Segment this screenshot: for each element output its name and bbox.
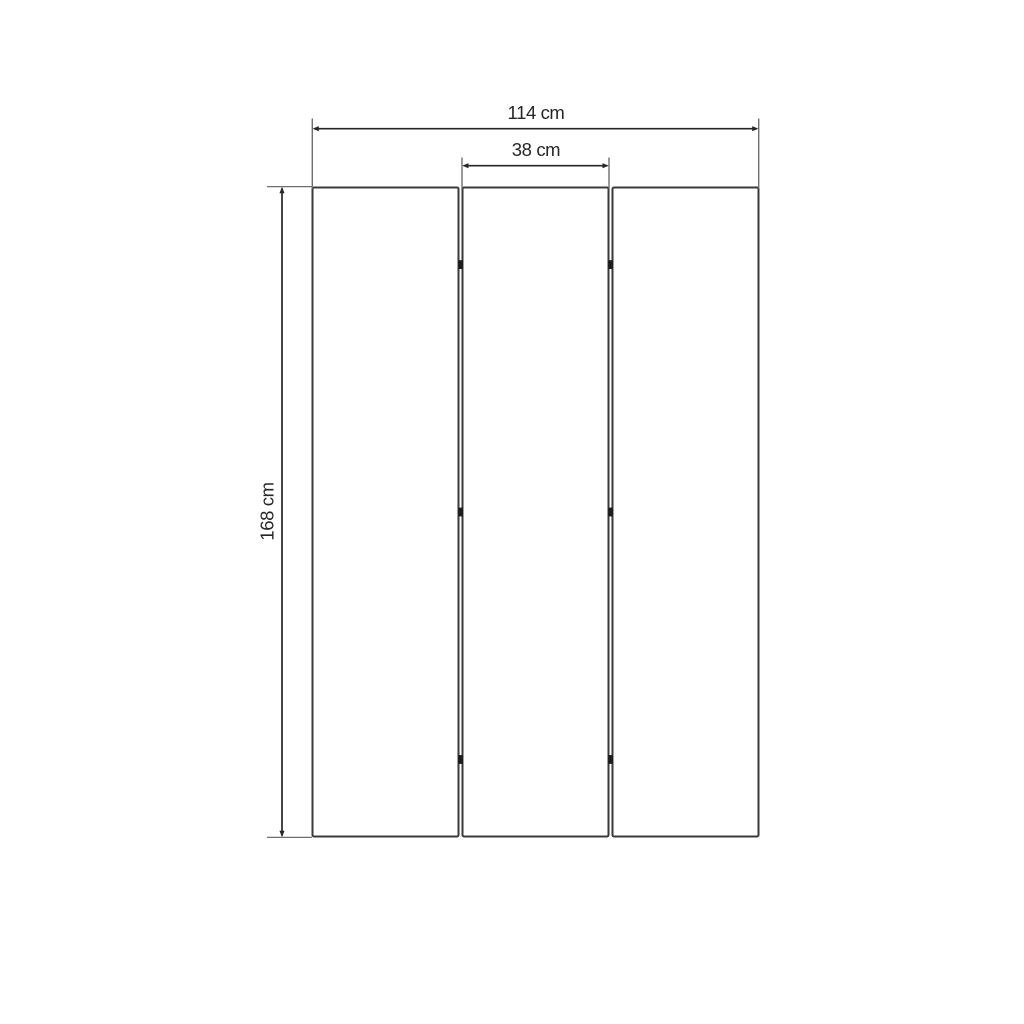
svg-text:114 cm: 114 cm [508,102,565,123]
svg-text:168 cm: 168 cm [257,482,278,540]
svg-text:38 cm: 38 cm [512,139,560,160]
